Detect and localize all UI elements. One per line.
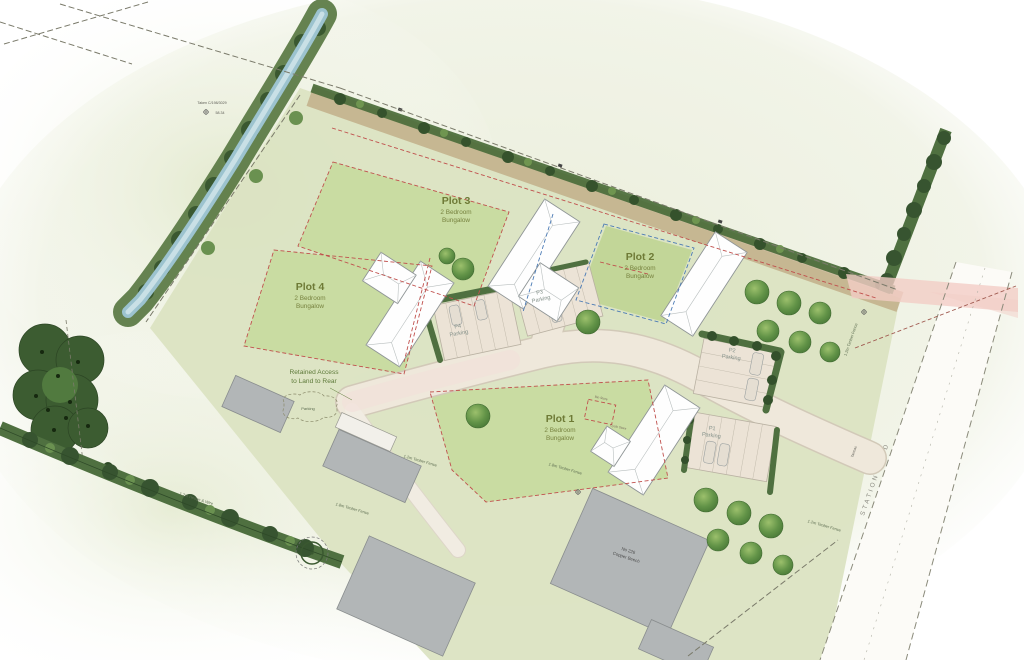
site-plan-drawing: STATION ROAD — [0, 0, 1024, 660]
svg-text:Plot 3: Plot 3 — [442, 195, 471, 207]
plot3-label: Plot 3 2 Bedroom Bungalow — [440, 195, 471, 224]
survey-ref-label: Taken C/198/3029 — [197, 101, 226, 105]
svg-text:2 Bedroom: 2 Bedroom — [624, 265, 655, 272]
site-plan-page: STATION ROAD — [0, 0, 1024, 660]
svg-text:Bungalow: Bungalow — [442, 217, 470, 224]
retained-tree-ring — [296, 537, 328, 569]
svg-text:2 Bedroom: 2 Bedroom — [544, 427, 575, 434]
retained-access-line1: Retained Access — [289, 369, 339, 376]
svg-text:Plot 1: Plot 1 — [546, 413, 575, 425]
retained-access-line2: to Land to Rear — [291, 378, 337, 385]
svg-text:Bungalow: Bungalow — [546, 435, 574, 442]
svg-text:Bungalow: Bungalow — [296, 303, 324, 310]
svg-text:2 Bedroom: 2 Bedroom — [294, 295, 325, 302]
parking-cloud-label: Parking — [301, 406, 315, 411]
plot2-label: Plot 2 2 Bedroom Bungalow — [624, 251, 655, 280]
svg-text:Bungalow: Bungalow — [626, 273, 654, 280]
svg-text:Plot 2: Plot 2 — [626, 251, 655, 263]
svg-text:58.34: 58.34 — [216, 111, 225, 115]
svg-text:Plot 4: Plot 4 — [296, 281, 325, 293]
svg-text:2 Bedroom: 2 Bedroom — [440, 209, 471, 216]
plot4-label: Plot 4 2 Bedroom Bungalow — [294, 281, 325, 310]
plot1-label: Plot 1 2 Bedroom Bungalow — [544, 413, 575, 442]
